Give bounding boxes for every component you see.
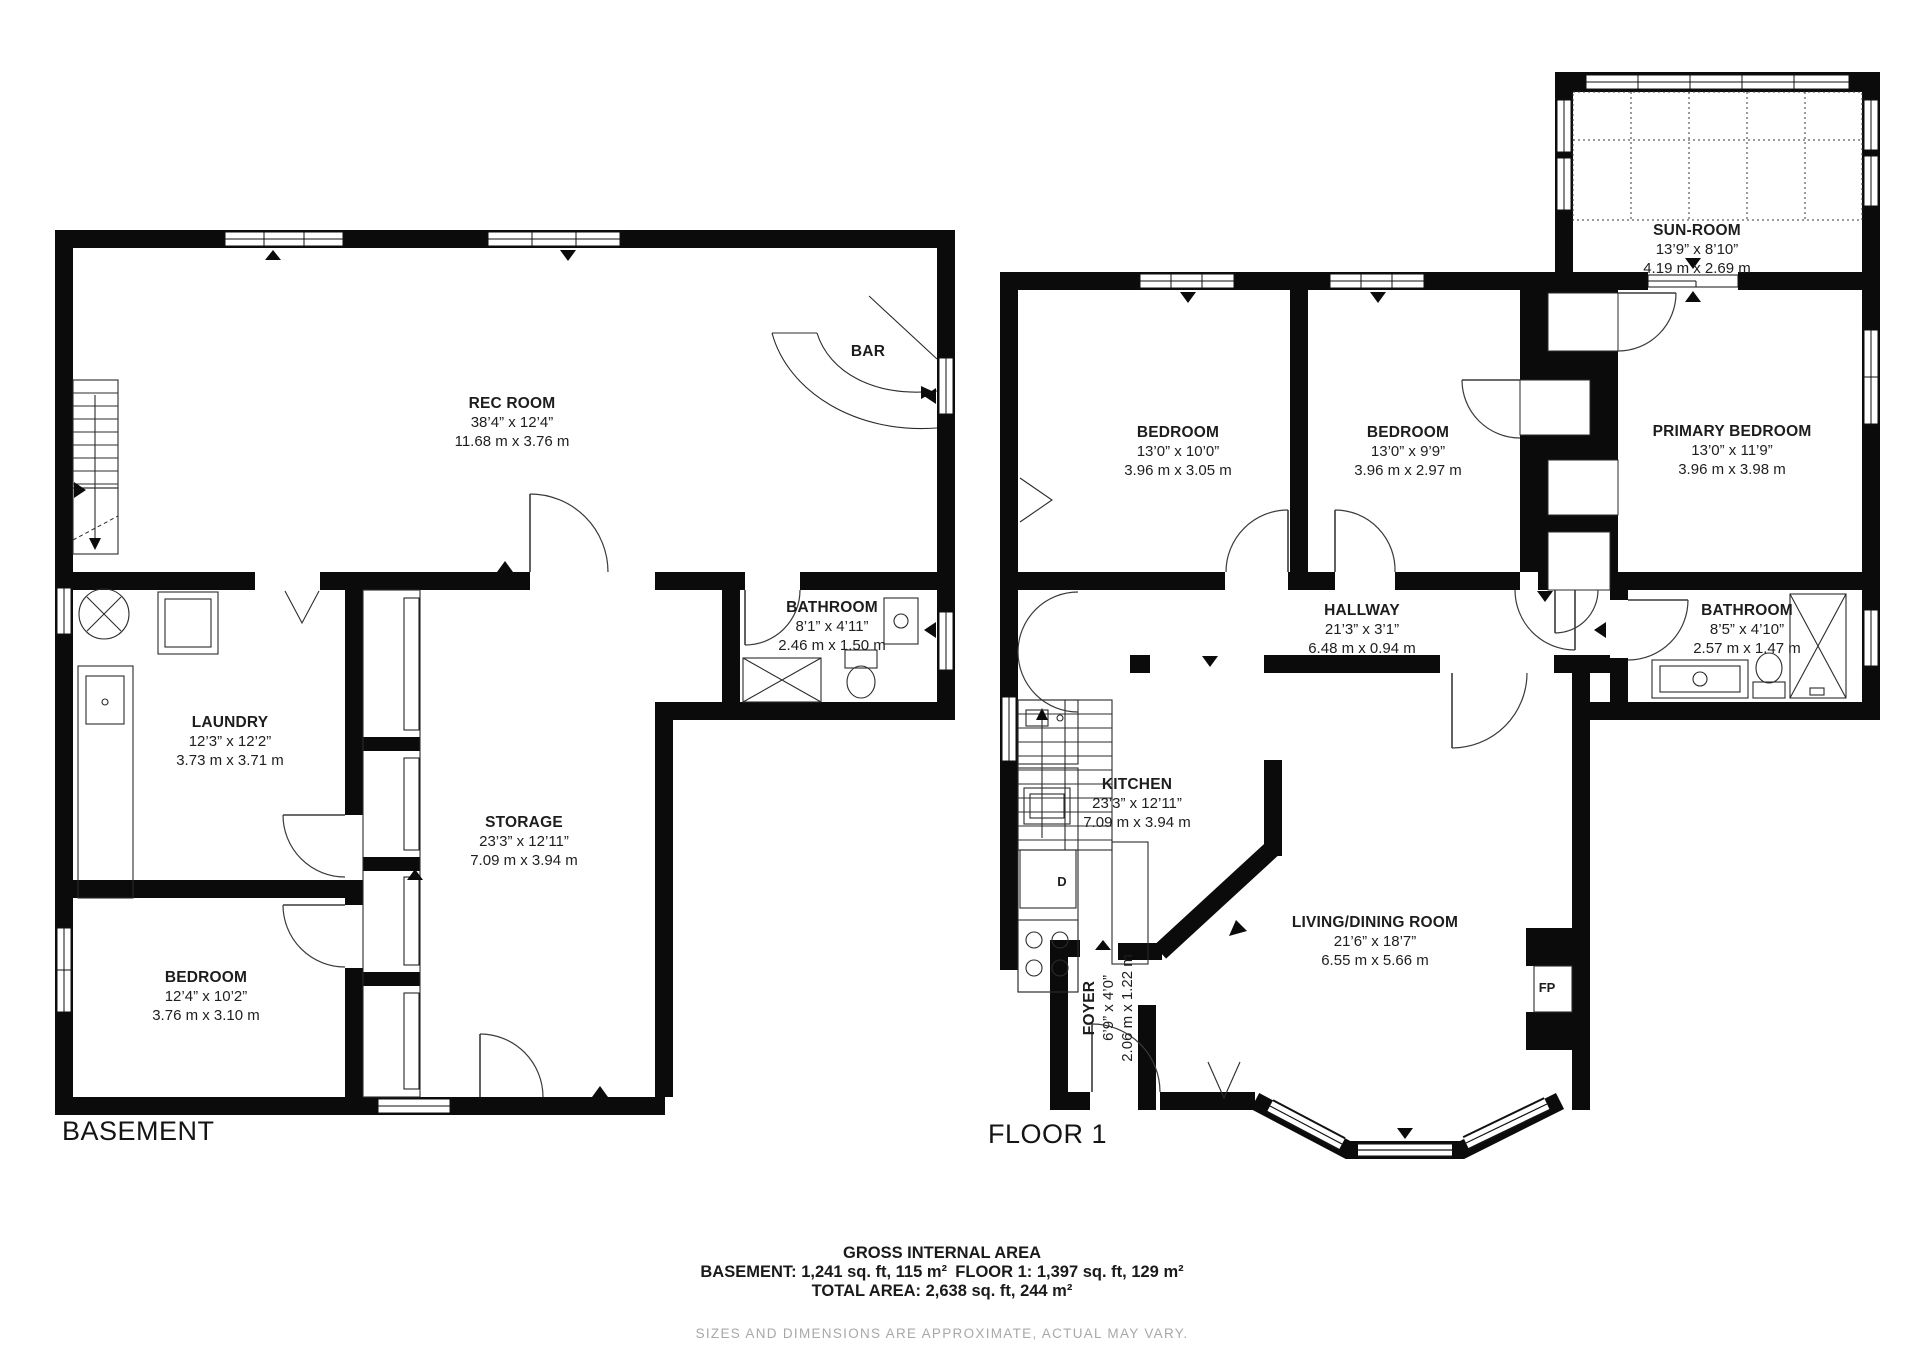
basement-stairs: [73, 380, 118, 554]
dishwasher-label: D: [1057, 874, 1066, 889]
window: [1140, 274, 1234, 288]
window: [939, 612, 953, 670]
window: [1864, 330, 1878, 424]
sunroom-skylight-grid: [1573, 92, 1862, 220]
svg-text:REC ROOM: REC ROOM: [469, 395, 556, 412]
floor1-labels: SUN-ROOM 13’9” x 8’10” 4.19 m x 2.69 m B…: [988, 222, 1811, 1149]
floorplan-canvas: REC ROOM 38’4” x 12’4” 11.68 m x 3.76 m …: [0, 0, 1920, 1358]
svg-text:PRIMARY BEDROOM: PRIMARY BEDROOM: [1653, 423, 1812, 440]
footer-total: TOTAL AREA: 2,638 sq. ft, 244 m²: [812, 1282, 1073, 1300]
svg-text:13’9” x 8’10”: 13’9” x 8’10”: [1656, 241, 1739, 258]
svg-text:BATHROOM: BATHROOM: [786, 599, 878, 616]
svg-text:3.96 m x 3.98 m: 3.96 m x 3.98 m: [1678, 461, 1786, 478]
svg-text:BEDROOM: BEDROOM: [1367, 424, 1449, 441]
basement-labels: REC ROOM 38’4” x 12’4” 11.68 m x 3.76 m …: [62, 343, 886, 1146]
washer: [158, 592, 218, 654]
bathroom-sink: [884, 598, 918, 644]
room-label-bedroom-middle: BEDROOM 13’0” x 9’9” 3.96 m x 2.97 m: [1354, 424, 1462, 479]
svg-text:3.73 m x 3.71 m: 3.73 m x 3.71 m: [176, 752, 284, 769]
svg-text:KITCHEN: KITCHEN: [1102, 776, 1172, 793]
svg-text:6.48 m x 0.94 m: 6.48 m x 0.94 m: [1308, 640, 1416, 657]
svg-text:LIVING/DINING ROOM: LIVING/DINING ROOM: [1292, 914, 1458, 931]
toilet: [845, 650, 877, 698]
room-label-primary-bedroom: PRIMARY BEDROOM 13’0” x 11’9” 3.96 m x 3…: [1653, 423, 1812, 478]
room-label-bedroom-left: BEDROOM 13’0” x 10’0” 3.96 m x 3.05 m: [1124, 424, 1232, 479]
svg-text:8’5” x 4’10”: 8’5” x 4’10”: [1710, 621, 1784, 638]
svg-text:23’3” x 12’11”: 23’3” x 12’11”: [1092, 795, 1182, 812]
basement-title: BASEMENT: [62, 1116, 215, 1146]
utility-sink: [78, 666, 133, 898]
svg-text:2.46 m x 1.50 m: 2.46 m x 1.50 m: [778, 637, 886, 654]
svg-text:3.96 m x 3.05 m: 3.96 m x 3.05 m: [1124, 462, 1232, 479]
room-label-rec-room: REC ROOM 38’4” x 12’4” 11.68 m x 3.76 m: [455, 395, 570, 450]
svg-text:3.76 m x 3.10 m: 3.76 m x 3.10 m: [152, 1007, 260, 1024]
svg-text:11.68 m x 3.76 m: 11.68 m x 3.76 m: [455, 433, 570, 450]
svg-text:6.55 m x 5.66 m: 6.55 m x 5.66 m: [1321, 952, 1429, 969]
svg-text:23’3” x 12’11”: 23’3” x 12’11”: [479, 833, 569, 850]
window: [1557, 158, 1571, 210]
svg-text:13’0” x 9’9”: 13’0” x 9’9”: [1371, 443, 1445, 460]
window: [1002, 697, 1016, 761]
room-label-living-dining: LIVING/DINING ROOM 21’6” x 18’7” 6.55 m …: [1292, 914, 1458, 969]
stairs-down-arrow: [89, 538, 101, 550]
room-label-laundry: LAUNDRY 12’3” x 12’2” 3.73 m x 3.71 m: [176, 714, 284, 769]
svg-text:21’3” x 3’1”: 21’3” x 3’1”: [1325, 621, 1399, 638]
water-heater: [79, 589, 129, 639]
footer-disclaimer: SIZES AND DIMENSIONS ARE APPROXIMATE, AC…: [696, 1326, 1189, 1341]
footer: GROSS INTERNAL AREA BASEMENT: 1,241 sq. …: [696, 1244, 1189, 1341]
svg-text:BATHROOM: BATHROOM: [1701, 602, 1793, 619]
room-label-storage: STORAGE 23’3” x 12’11” 7.09 m x 3.94 m: [470, 814, 578, 869]
window: [225, 232, 343, 246]
window: [1557, 100, 1571, 152]
svg-text:12’3” x 12’2”: 12’3” x 12’2”: [189, 733, 272, 750]
floor1-plan: SUN-ROOM 13’9” x 8’10” 4.19 m x 2.69 m B…: [988, 72, 1880, 1150]
window: [1330, 274, 1424, 288]
room-label-foyer: FOYER 6’9” x 4’0” 2.06 m x 1.22 m: [1081, 954, 1136, 1062]
window: [1864, 610, 1878, 666]
room-label-bedroom: BEDROOM 12’4” x 10’2” 3.76 m x 3.10 m: [152, 969, 260, 1024]
toilet: [1753, 653, 1785, 698]
kitchen-sink: [1024, 788, 1070, 824]
room-label-bathroom: BATHROOM 8’1” x 4’11” 2.46 m x 1.50 m: [778, 599, 886, 654]
footer-areas: BASEMENT: 1,241 sq. ft, 115 m² FLOOR 1: …: [700, 1263, 1184, 1281]
svg-text:21’6” x 18’7”: 21’6” x 18’7”: [1334, 933, 1417, 950]
svg-text:FOYER: FOYER: [1081, 981, 1098, 1035]
bay-window-left: [1270, 1106, 1342, 1144]
svg-text:BEDROOM: BEDROOM: [1137, 424, 1219, 441]
bar-counter: [772, 296, 937, 429]
window: [1864, 156, 1878, 206]
bar-label: BAR: [851, 343, 885, 360]
window: [1864, 100, 1878, 150]
window: [1586, 75, 1849, 89]
kitchen-counter: [1018, 768, 1078, 992]
svg-text:13’0” x 10’0”: 13’0” x 10’0”: [1137, 443, 1220, 460]
wall-break-mark: [1020, 478, 1052, 522]
shower: [743, 658, 821, 702]
basement-plan: REC ROOM 38’4” x 12’4” 11.68 m x 3.76 m …: [55, 230, 955, 1146]
fireplace-label: FP: [1539, 980, 1556, 995]
svg-text:LAUNDRY: LAUNDRY: [192, 714, 269, 731]
svg-text:13’0” x 11’9”: 13’0” x 11’9”: [1691, 442, 1772, 459]
svg-text:STORAGE: STORAGE: [485, 814, 563, 831]
window: [57, 588, 71, 634]
window: [57, 928, 71, 1012]
svg-text:12’4” x 10’2”: 12’4” x 10’2”: [165, 988, 248, 1005]
closet-doors: [363, 590, 420, 1097]
svg-text:7.09 m x 3.94 m: 7.09 m x 3.94 m: [1083, 814, 1191, 831]
open-passage-mark: [285, 591, 319, 623]
window: [488, 232, 620, 246]
svg-text:2.06 m x 1.22 m: 2.06 m x 1.22 m: [1119, 954, 1136, 1062]
svg-text:4.19 m x 2.69 m: 4.19 m x 2.69 m: [1643, 260, 1751, 277]
svg-text:8’1” x 4’11”: 8’1” x 4’11”: [795, 618, 868, 635]
svg-text:BEDROOM: BEDROOM: [165, 969, 247, 986]
room-label-hallway: HALLWAY 21’3” x 3’1” 6.48 m x 0.94 m: [1308, 602, 1416, 657]
dishwasher: [1020, 850, 1076, 908]
svg-text:HALLWAY: HALLWAY: [1324, 602, 1400, 619]
room-label-sun-room: SUN-ROOM 13’9” x 8’10” 4.19 m x 2.69 m: [1643, 222, 1751, 277]
window: [939, 358, 953, 414]
floor1-title: FLOOR 1: [988, 1119, 1107, 1149]
fridge: [1018, 700, 1078, 764]
bathroom-vanity: [1652, 660, 1748, 698]
svg-text:38’4” x 12’4”: 38’4” x 12’4”: [471, 414, 554, 431]
footer-title: GROSS INTERNAL AREA: [843, 1244, 1041, 1262]
svg-text:3.96 m x 2.97 m: 3.96 m x 2.97 m: [1354, 462, 1462, 479]
window: [378, 1099, 450, 1113]
svg-text:2.57 m x 1.47 m: 2.57 m x 1.47 m: [1693, 640, 1801, 657]
svg-text:7.09 m x 3.94 m: 7.09 m x 3.94 m: [470, 852, 578, 869]
svg-text:6’9” x 4’0”: 6’9” x 4’0”: [1100, 975, 1117, 1041]
room-label-bathroom: BATHROOM 8’5” x 4’10” 2.57 m x 1.47 m: [1693, 602, 1801, 657]
svg-text:SUN-ROOM: SUN-ROOM: [1653, 222, 1741, 239]
